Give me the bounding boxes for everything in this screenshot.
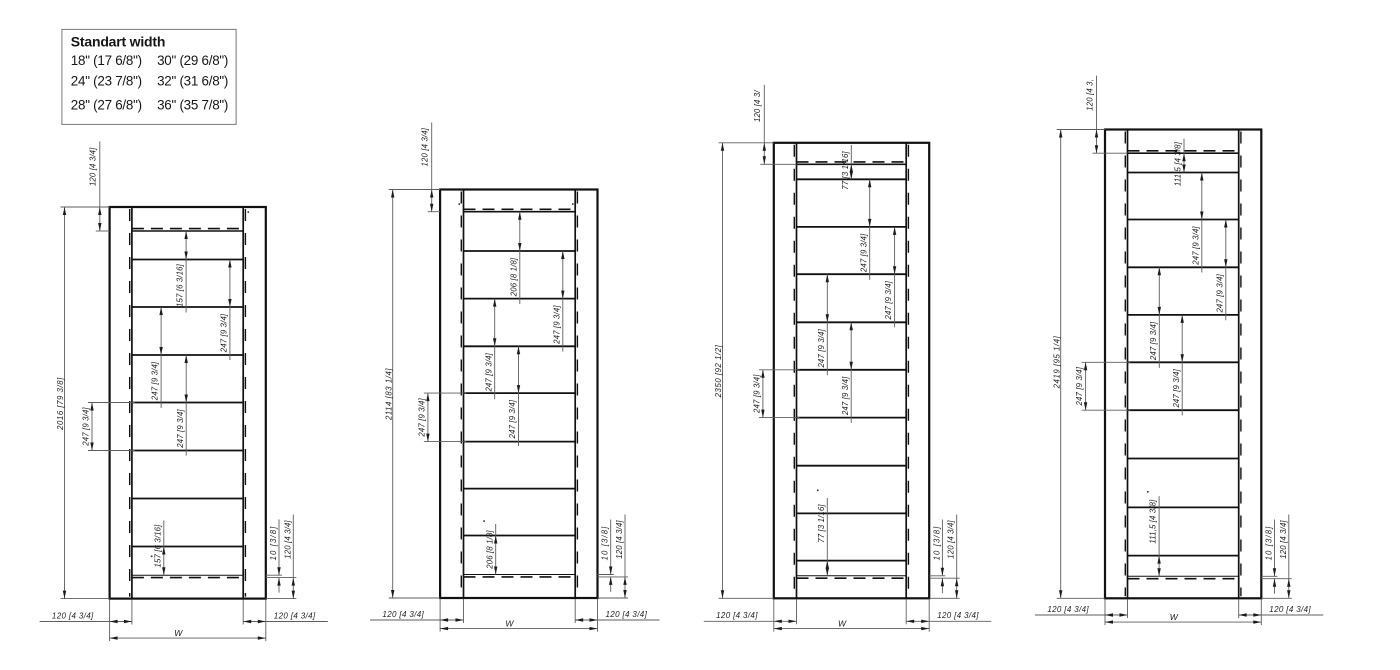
svg-text:W: W bbox=[174, 628, 183, 638]
svg-text:247 [9 3/4]: 247 [9 3/4] bbox=[82, 407, 91, 447]
svg-text:Standart width: Standart width bbox=[71, 34, 165, 50]
svg-text:120 [4 3/4]: 120 [4 3/4] bbox=[1269, 605, 1311, 614]
svg-text:2350 [92 1/2]: 2350 [92 1/2] bbox=[714, 344, 723, 398]
svg-text:157 [6 3/16]: 157 [6 3/16] bbox=[176, 263, 185, 307]
svg-text:247 [9 3/4]: 247 [9 3/4] bbox=[859, 233, 868, 273]
svg-text:120 [4 3/4]: 120 [4 3/4] bbox=[274, 611, 316, 620]
svg-text:2419 [95 1/4]: 2419 [95 1/4] bbox=[1052, 335, 1061, 389]
svg-text:120 [4 3/4]: 120 [4 3/4] bbox=[283, 520, 292, 559]
svg-text:32" (31 6/8"): 32" (31 6/8") bbox=[157, 73, 228, 88]
svg-text:120 [4 3/4]: 120 [4 3/4] bbox=[382, 610, 424, 619]
svg-text:247 [9 3/4]: 247 [9 3/4] bbox=[817, 328, 826, 368]
svg-text:247 [9 3/4]: 247 [9 3/4] bbox=[484, 352, 493, 392]
svg-text:2114 [83 1/4]: 2114 [83 1/4] bbox=[384, 368, 393, 421]
svg-text:247 [9 3/4]: 247 [9 3/4] bbox=[1149, 321, 1158, 361]
svg-text:247 [9 3/4]: 247 [9 3/4] bbox=[841, 376, 850, 416]
svg-text:120 [4 3/4]: 120 [4 3/4] bbox=[615, 520, 624, 559]
svg-text:247 [9 3/4]: 247 [9 3/4] bbox=[1172, 368, 1181, 408]
svg-text:247 [9 3/4]: 247 [9 3/4] bbox=[884, 280, 893, 320]
svg-text:2016 [79 3/8]: 2016 [79 3/8] bbox=[56, 377, 65, 431]
svg-text:120 [4 3/: 120 [4 3/ bbox=[753, 90, 762, 122]
svg-text:W: W bbox=[838, 619, 847, 629]
svg-text:120 [4 3/4]: 120 [4 3/4] bbox=[716, 611, 758, 620]
svg-text:247 [9 3/4]: 247 [9 3/4] bbox=[176, 409, 185, 449]
svg-text:120 [4 3/4]: 120 [4 3/4] bbox=[421, 127, 430, 166]
svg-text:247 [9 3/4]: 247 [9 3/4] bbox=[1215, 273, 1224, 313]
svg-text:247 [9 3/4]: 247 [9 3/4] bbox=[220, 313, 229, 353]
svg-text:10 [3/8]: 10 [3/8] bbox=[269, 526, 278, 561]
svg-text:247 [9 3/4]: 247 [9 3/4] bbox=[753, 374, 762, 414]
svg-text:10 [3/8]: 10 [3/8] bbox=[1265, 526, 1274, 561]
svg-text:111,5 [4 3/8]: 111,5 [4 3/8] bbox=[1149, 499, 1158, 544]
svg-text:206 [8 1/8]: 206 [8 1/8] bbox=[485, 530, 494, 570]
svg-text:77 [3 1/16]: 77 [3 1/16] bbox=[817, 504, 826, 543]
svg-text:120 [4 3/4]: 120 [4 3/4] bbox=[606, 610, 648, 619]
svg-text:W: W bbox=[505, 619, 514, 629]
svg-text:24" (23 7/8"): 24" (23 7/8") bbox=[71, 73, 142, 88]
svg-text:30" (29 6/8"): 30" (29 6/8") bbox=[157, 53, 228, 68]
svg-text:18" (17 6/8"): 18" (17 6/8") bbox=[71, 53, 142, 68]
svg-text:247 [9 3/4]: 247 [9 3/4] bbox=[151, 361, 160, 401]
svg-text:111,5 [4 3/8]: 111,5 [4 3/8] bbox=[1174, 141, 1183, 186]
svg-text:77 [3 1/16]: 77 [3 1/16] bbox=[841, 151, 850, 190]
svg-text:120 [4 3/4]: 120 [4 3/4] bbox=[1047, 605, 1089, 614]
svg-text:10 [3/8]: 10 [3/8] bbox=[601, 526, 610, 561]
svg-text:28" (27 6/8"): 28" (27 6/8") bbox=[71, 98, 142, 113]
svg-text:10 [3/8]: 10 [3/8] bbox=[932, 526, 941, 561]
svg-text:120 [4 3/4]: 120 [4 3/4] bbox=[947, 520, 956, 559]
svg-text:157 [6 3/16]: 157 [6 3/16] bbox=[153, 524, 162, 568]
svg-text:247 [9 3/4]: 247 [9 3/4] bbox=[418, 397, 427, 437]
svg-text:206 [8 1/8]: 206 [8 1/8] bbox=[509, 257, 518, 297]
svg-text:120 [4 3,: 120 [4 3, bbox=[1085, 79, 1094, 111]
svg-text:120 [4 3/4]: 120 [4 3/4] bbox=[1279, 520, 1288, 559]
svg-text:247 [9 3/4]: 247 [9 3/4] bbox=[1075, 366, 1084, 406]
svg-text:120 [4 3/4]: 120 [4 3/4] bbox=[89, 147, 98, 186]
svg-text:120 [4 3/4]: 120 [4 3/4] bbox=[52, 611, 94, 620]
svg-text:247 [9 3/4]: 247 [9 3/4] bbox=[1191, 226, 1200, 266]
svg-text:36" (35 7/8"): 36" (35 7/8") bbox=[157, 98, 228, 113]
svg-text:247 [9 3/4]: 247 [9 3/4] bbox=[508, 399, 517, 439]
svg-text:247 [9 3/4]: 247 [9 3/4] bbox=[552, 305, 561, 345]
svg-text:W: W bbox=[1170, 612, 1179, 622]
svg-text:120 [4 3/4]: 120 [4 3/4] bbox=[937, 611, 979, 620]
